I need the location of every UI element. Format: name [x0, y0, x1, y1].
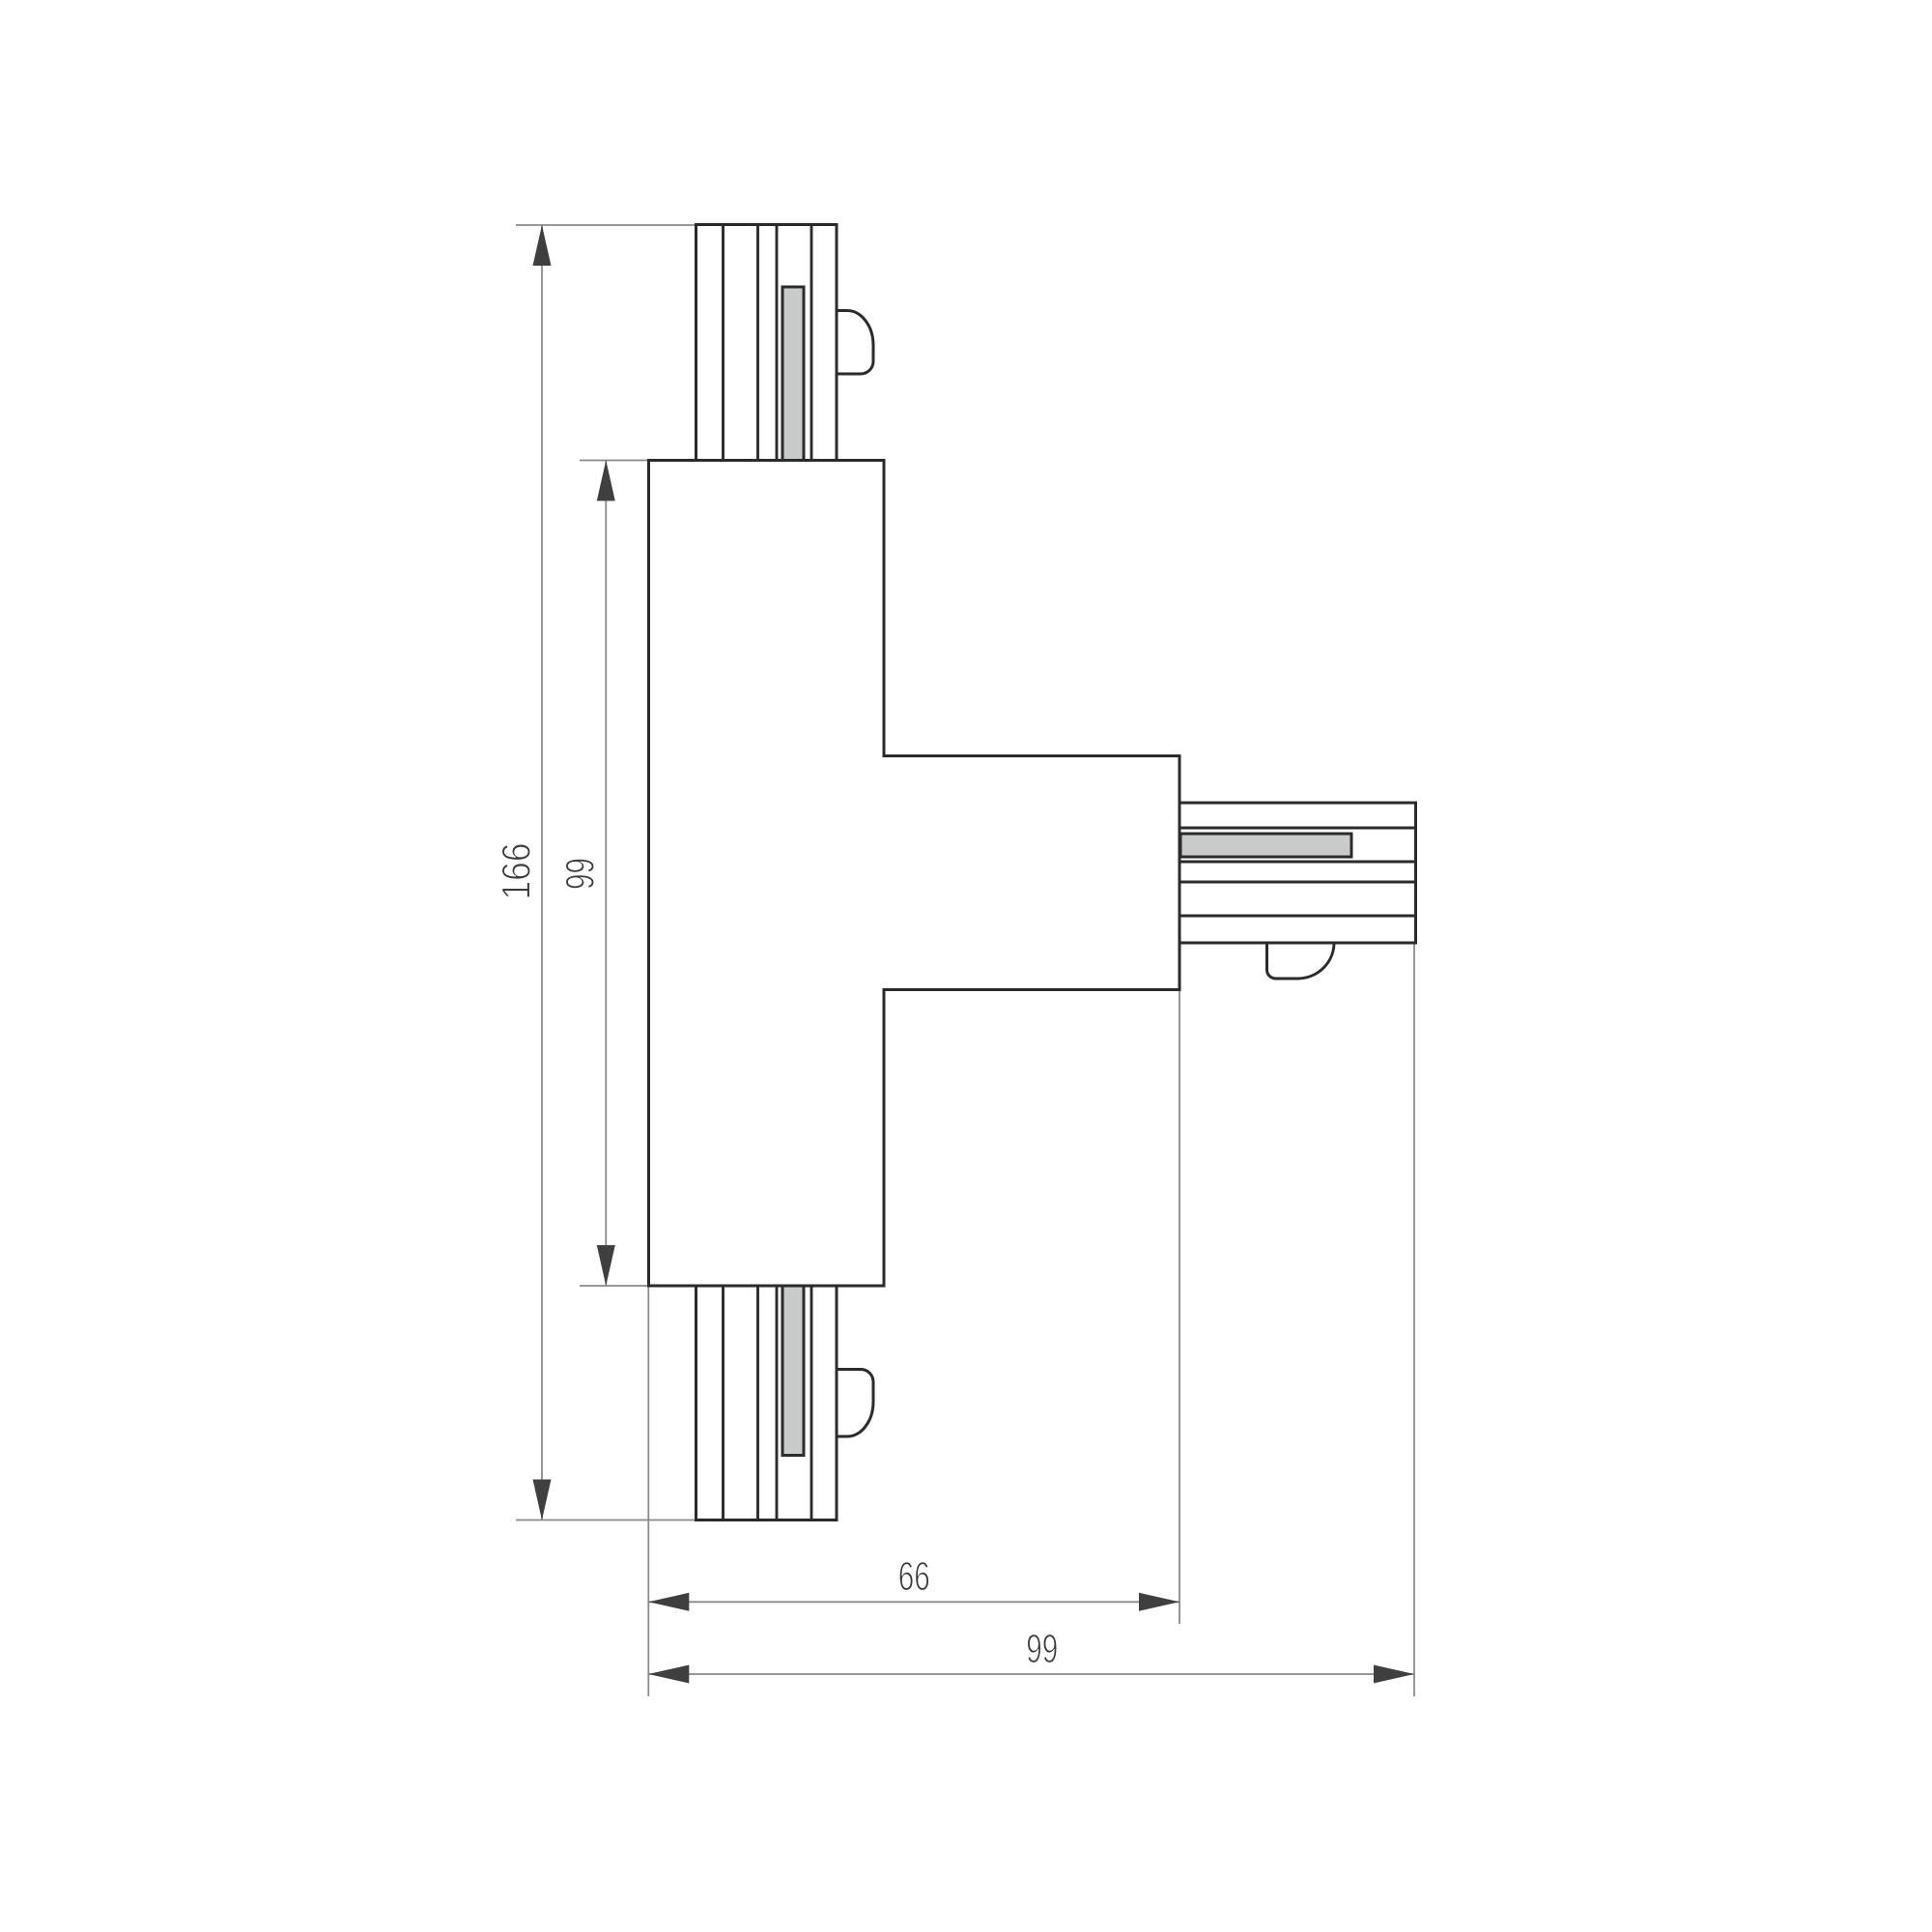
svg-text:99: 99 [1026, 1626, 1058, 1671]
svg-text:66: 66 [898, 1553, 930, 1599]
svg-text:99: 99 [557, 858, 603, 890]
svg-text:166: 166 [494, 843, 539, 900]
